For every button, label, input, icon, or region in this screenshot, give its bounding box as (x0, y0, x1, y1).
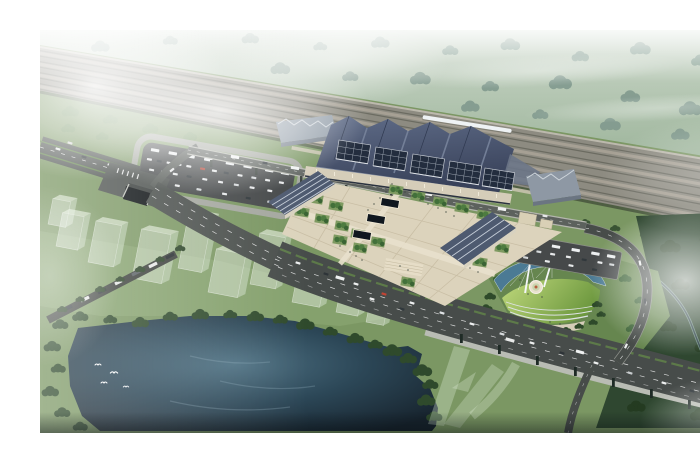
frame-top (40, 16, 700, 30)
emblem-plaza (530, 281, 543, 294)
frame-bottom (40, 433, 700, 453)
bottom-vignette (40, 412, 700, 433)
rendering-frame: Aerial rendering of a riverside high-spe… (40, 16, 700, 453)
